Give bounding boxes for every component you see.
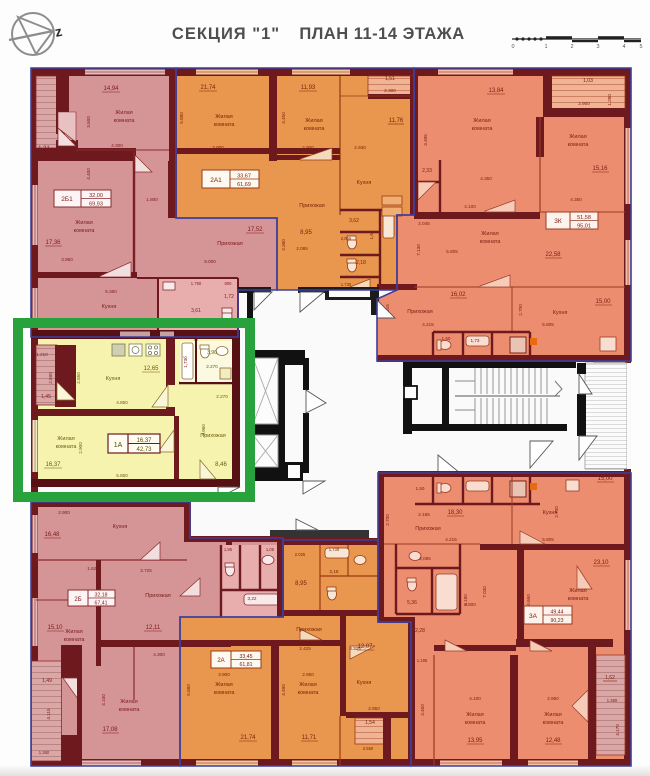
svg-text:Жилая: Жилая xyxy=(473,118,490,124)
svg-text:2.900: 2.900 xyxy=(578,101,590,106)
svg-text:Жилая: Жилая xyxy=(544,712,561,718)
svg-text:33,45: 33,45 xyxy=(240,654,253,660)
svg-text:0: 0 xyxy=(511,44,514,50)
svg-text:1,05: 1,05 xyxy=(266,547,275,552)
svg-text:1,51: 1,51 xyxy=(385,76,395,82)
svg-text:5,36: 5,36 xyxy=(407,600,417,606)
svg-text:2,33: 2,33 xyxy=(422,168,432,174)
svg-text:комната: комната xyxy=(568,596,590,602)
svg-text:2.930: 2.930 xyxy=(354,145,366,150)
svg-text:2.950: 2.950 xyxy=(302,672,314,677)
svg-text:800: 800 xyxy=(225,281,233,286)
svg-text:4.850: 4.850 xyxy=(116,400,128,405)
svg-text:Жилая: Жилая xyxy=(569,588,586,594)
svg-text:3,22: 3,22 xyxy=(248,596,257,601)
svg-text:5.805: 5.805 xyxy=(542,537,554,542)
svg-text:Кухня: Кухня xyxy=(106,376,121,382)
svg-text:комната: комната xyxy=(472,126,494,132)
svg-text:8,95: 8,95 xyxy=(295,581,307,587)
svg-text:4.115: 4.115 xyxy=(46,708,51,720)
svg-text:1.625: 1.625 xyxy=(87,566,99,571)
svg-text:17,52: 17,52 xyxy=(247,227,263,233)
svg-text:61,81: 61,81 xyxy=(240,662,253,668)
svg-text:11,71: 11,71 xyxy=(302,735,317,741)
svg-text:5.850: 5.850 xyxy=(116,473,128,478)
svg-text:12,11: 12,11 xyxy=(146,625,161,631)
svg-text:1.360: 1.360 xyxy=(39,750,50,755)
svg-text:2.500: 2.500 xyxy=(48,372,53,384)
svg-text:8.000: 8.000 xyxy=(204,259,216,264)
svg-text:4.650: 4.650 xyxy=(526,594,531,606)
svg-text:1.750: 1.750 xyxy=(191,281,202,286)
svg-text:4.400: 4.400 xyxy=(86,168,91,180)
svg-text:17,36: 17,36 xyxy=(45,240,61,246)
svg-text:Жилая: Жилая xyxy=(75,220,92,226)
svg-text:11,76: 11,76 xyxy=(389,118,404,124)
svg-text:49,44: 49,44 xyxy=(551,610,564,616)
svg-text:2А: 2А xyxy=(217,658,224,664)
svg-text:Жилая: Жилая xyxy=(481,231,498,237)
svg-text:13,95: 13,95 xyxy=(467,738,483,744)
svg-text:2.950: 2.950 xyxy=(547,696,559,701)
svg-text:Жилая: Жилая xyxy=(299,682,316,688)
svg-text:4.450: 4.450 xyxy=(281,112,286,124)
svg-text:8,46: 8,46 xyxy=(215,462,227,468)
svg-text:21,74: 21,74 xyxy=(240,735,256,741)
svg-text:4.300: 4.300 xyxy=(153,652,165,657)
svg-text:2.425: 2.425 xyxy=(299,646,311,651)
svg-text:51,58: 51,58 xyxy=(577,215,591,221)
svg-text:2.900: 2.900 xyxy=(58,510,70,515)
svg-text:17,08: 17,08 xyxy=(102,727,118,733)
svg-text:16,37: 16,37 xyxy=(45,462,61,468)
svg-text:Прихожая: Прихожая xyxy=(407,309,433,315)
svg-text:Жилая: Жилая xyxy=(65,629,82,635)
svg-text:Кухня: Кухня xyxy=(102,304,117,310)
svg-text:1,49: 1,49 xyxy=(42,678,52,684)
svg-text:Жилая: Жилая xyxy=(115,110,132,116)
svg-text:42,73: 42,73 xyxy=(136,447,152,453)
svg-text:комната: комната xyxy=(568,142,590,148)
svg-text:Жилая: Жилая xyxy=(215,682,232,688)
svg-text:18,30: 18,30 xyxy=(447,510,463,516)
svg-text:комната: комната xyxy=(465,720,487,726)
svg-text:1: 1 xyxy=(544,44,547,50)
svg-text:Жилая: Жилая xyxy=(120,699,137,705)
svg-text:2.180: 2.180 xyxy=(463,594,468,606)
svg-text:1,54: 1,54 xyxy=(365,720,375,726)
svg-text:1.210: 1.210 xyxy=(36,352,48,357)
svg-text:3А: 3А xyxy=(529,613,538,620)
svg-text:Прихожая: Прихожая xyxy=(415,526,441,532)
svg-text:8,95: 8,95 xyxy=(300,230,312,236)
svg-text:2,065: 2,065 xyxy=(341,236,352,241)
svg-text:1.800: 1.800 xyxy=(146,197,158,202)
svg-text:Жилая: Жилая xyxy=(215,114,232,120)
svg-text:комната: комната xyxy=(114,118,136,124)
svg-text:12,65: 12,65 xyxy=(143,366,159,372)
svg-text:3.725: 3.725 xyxy=(140,568,152,573)
svg-text:1,72: 1,72 xyxy=(224,294,234,300)
svg-text:3.450: 3.450 xyxy=(420,704,425,716)
svg-text:1,31: 1,31 xyxy=(38,146,50,152)
svg-text:5.805: 5.805 xyxy=(446,249,458,254)
svg-text:4.380: 4.380 xyxy=(281,239,286,251)
svg-text:12,48: 12,48 xyxy=(545,738,561,744)
svg-text:67,41: 67,41 xyxy=(95,601,108,607)
svg-text:7.030: 7.030 xyxy=(482,586,487,598)
svg-text:3.960: 3.960 xyxy=(201,424,206,436)
svg-text:Кухня: Кухня xyxy=(113,524,128,530)
svg-text:16,48: 16,48 xyxy=(44,532,60,538)
svg-text:13,84: 13,84 xyxy=(488,88,504,94)
svg-text:ПЛАН 11-14 ЭТАЖА: ПЛАН 11-14 ЭТАЖА xyxy=(299,25,464,43)
svg-text:7.130: 7.130 xyxy=(416,244,421,256)
svg-text:4.300: 4.300 xyxy=(111,143,123,148)
svg-text:Кухня: Кухня xyxy=(357,180,372,186)
svg-text:2.300: 2.300 xyxy=(384,88,396,93)
svg-text:4: 4 xyxy=(622,44,625,50)
svg-text:3.950: 3.950 xyxy=(61,257,73,262)
svg-text:2.270: 2.270 xyxy=(206,364,218,369)
svg-text:Прихожая: Прихожая xyxy=(145,593,171,599)
svg-text:15,00: 15,00 xyxy=(595,299,611,305)
svg-text:комната: комната xyxy=(480,239,502,245)
svg-text:1,50: 1,50 xyxy=(416,486,425,491)
svg-text:3К: 3К xyxy=(554,218,562,225)
svg-text:2,18: 2,18 xyxy=(330,569,339,574)
svg-text:90,23: 90,23 xyxy=(551,618,564,624)
svg-text:комната: комната xyxy=(543,720,565,726)
svg-text:Кухня: Кухня xyxy=(553,310,568,316)
svg-text:4.100: 4.100 xyxy=(464,204,476,209)
svg-text:Жилая: Жилая xyxy=(569,134,586,140)
svg-text:4.490: 4.490 xyxy=(281,684,286,696)
svg-text:4.215: 4.215 xyxy=(422,322,434,327)
svg-text:95,01: 95,01 xyxy=(577,224,591,230)
svg-text:1А: 1А xyxy=(114,442,123,449)
svg-text:2.165: 2.165 xyxy=(418,512,430,517)
svg-text:Жилая: Жилая xyxy=(305,118,322,124)
svg-text:Прихожая: Прихожая xyxy=(217,241,243,247)
svg-text:15,16: 15,16 xyxy=(592,166,608,172)
svg-text:14,94: 14,94 xyxy=(103,86,119,92)
svg-text:3.900: 3.900 xyxy=(212,145,224,150)
svg-text:23,10: 23,10 xyxy=(593,560,609,566)
svg-text:1,03: 1,03 xyxy=(583,78,593,84)
svg-text:2: 2 xyxy=(570,44,573,50)
svg-text:1,45: 1,45 xyxy=(41,394,51,400)
svg-text:22,58: 22,58 xyxy=(545,252,561,258)
svg-text:Прихожая: Прихожая xyxy=(299,203,325,209)
svg-text:2.025: 2.025 xyxy=(295,552,306,557)
svg-text:комната: комната xyxy=(214,122,236,128)
svg-text:15,00: 15,00 xyxy=(597,476,613,482)
svg-text:1.195: 1.195 xyxy=(417,658,428,663)
svg-text:15,10: 15,10 xyxy=(47,625,63,631)
svg-text:12,07: 12,07 xyxy=(357,644,373,650)
svg-text:2.700: 2.700 xyxy=(385,514,390,526)
svg-text:3,61: 3,61 xyxy=(191,308,201,314)
svg-text:Жилая: Жилая xyxy=(466,712,483,718)
svg-text:2Б1: 2Б1 xyxy=(61,196,73,203)
svg-text:2А1: 2А1 xyxy=(210,177,222,184)
svg-text:комната: комната xyxy=(304,126,326,132)
svg-text:1,73б: 1,73б xyxy=(329,547,340,552)
svg-text:5.880: 5.880 xyxy=(186,684,191,696)
svg-text:16,37: 16,37 xyxy=(136,438,152,444)
svg-text:32,00: 32,00 xyxy=(89,193,103,199)
svg-text:2,18: 2,18 xyxy=(356,260,366,266)
svg-text:1,62: 1,62 xyxy=(605,675,615,681)
svg-text:1,60: 1,60 xyxy=(369,230,374,239)
svg-text:2,28: 2,28 xyxy=(415,628,425,634)
svg-text:4.350: 4.350 xyxy=(570,197,582,202)
svg-text:2.700: 2.700 xyxy=(554,506,559,518)
svg-text:11,93: 11,93 xyxy=(301,85,316,91)
svg-text:комната: комната xyxy=(56,444,78,450)
svg-text:1.280: 1.280 xyxy=(607,94,612,106)
svg-text:2.270: 2.270 xyxy=(216,394,228,399)
svg-text:32,18: 32,18 xyxy=(95,593,108,599)
svg-text:2.900: 2.900 xyxy=(302,145,314,150)
svg-text:5: 5 xyxy=(639,44,642,50)
svg-text:4.100: 4.100 xyxy=(469,696,481,701)
svg-text:2.850: 2.850 xyxy=(76,372,81,384)
svg-text:16,02: 16,02 xyxy=(450,292,466,298)
svg-text:3.900: 3.900 xyxy=(218,672,230,677)
svg-text:3: 3 xyxy=(596,44,599,50)
svg-text:комната: комната xyxy=(298,690,320,696)
svg-text:1,73б: 1,73б xyxy=(183,356,188,368)
svg-text:1.360: 1.360 xyxy=(607,698,618,703)
svg-text:3.600: 3.600 xyxy=(86,116,91,128)
svg-text:Прихожая: Прихожая xyxy=(296,627,322,633)
svg-text:5.805: 5.805 xyxy=(542,322,554,327)
svg-text:1,50: 1,50 xyxy=(442,336,451,341)
svg-text:1.730: 1.730 xyxy=(341,282,352,287)
svg-text:1,95: 1,95 xyxy=(224,547,233,552)
svg-text:Кухня: Кухня xyxy=(357,680,372,686)
svg-text:2,065: 2,065 xyxy=(419,556,431,561)
svg-text:комната: комната xyxy=(214,690,236,696)
svg-text:2.045: 2.045 xyxy=(418,221,430,226)
svg-text:комната: комната xyxy=(119,707,141,713)
svg-text:комната: комната xyxy=(74,228,96,234)
svg-text:4.350: 4.350 xyxy=(480,176,492,181)
svg-text:69,93: 69,93 xyxy=(89,202,103,208)
svg-text:2.950: 2.950 xyxy=(368,706,380,711)
svg-text:21,74: 21,74 xyxy=(200,85,216,91)
svg-text:2.900: 2.900 xyxy=(78,442,83,454)
svg-text:5.880: 5.880 xyxy=(179,112,184,124)
svg-text:комната: комната xyxy=(64,637,86,643)
svg-text:4.215: 4.215 xyxy=(445,537,457,542)
svg-text:4.100: 4.100 xyxy=(101,694,106,706)
svg-text:5.360: 5.360 xyxy=(105,289,117,294)
svg-text:4.170: 4.170 xyxy=(615,724,620,736)
svg-text:Жилая: Жилая xyxy=(57,436,74,442)
svg-text:33,67: 33,67 xyxy=(237,174,251,180)
svg-text:3,90: 3,90 xyxy=(207,350,217,356)
svg-text:2.550: 2.550 xyxy=(363,746,374,751)
svg-text:3.495: 3.495 xyxy=(423,134,428,146)
svg-text:1,73: 1,73 xyxy=(471,338,480,343)
svg-text:СЕКЦИЯ "1": СЕКЦИЯ "1" xyxy=(172,25,280,43)
svg-text:1.280: 1.280 xyxy=(40,70,52,75)
svg-text:3,62: 3,62 xyxy=(349,218,359,224)
svg-text:2.085: 2.085 xyxy=(296,246,308,251)
svg-text:2Б: 2Б xyxy=(74,597,81,603)
svg-text:2.700: 2.700 xyxy=(518,304,523,316)
svg-text:61,69: 61,69 xyxy=(237,182,251,188)
